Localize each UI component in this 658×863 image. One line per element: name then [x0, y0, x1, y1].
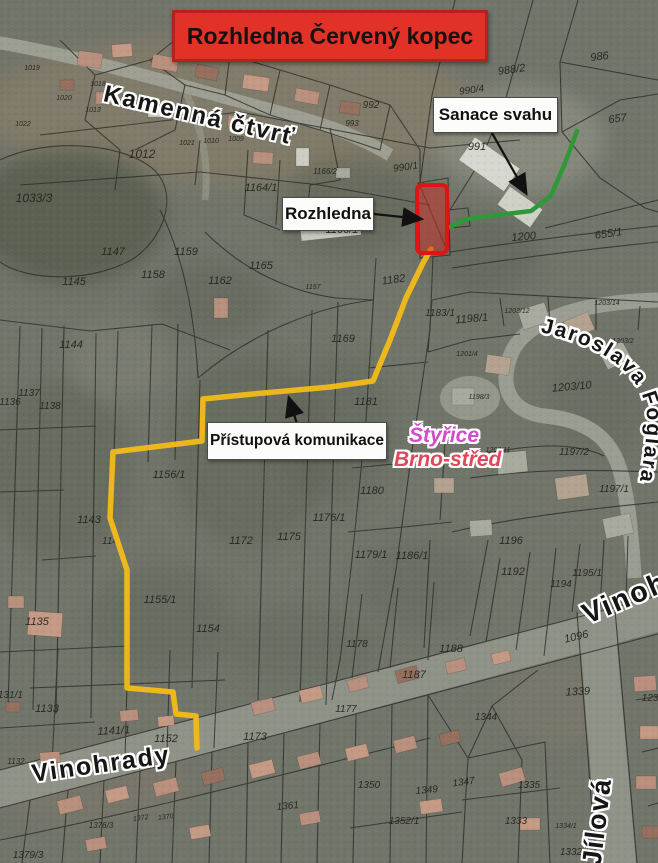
- parcel-number: 1179/1: [355, 549, 388, 561]
- parcel-number: 1333: [505, 816, 528, 827]
- parcel-number: 1350: [358, 780, 381, 791]
- parcel-number: 1154: [196, 623, 220, 635]
- sanace-label-text: Sanace svahu: [439, 105, 552, 125]
- parcel-number: 1376/3: [89, 821, 114, 830]
- parcel-number: 1135: [25, 616, 50, 628]
- parcel-number: 1131/1: [0, 690, 23, 701]
- parcel-number: 1013: [85, 107, 101, 114]
- parcel-number: 1203/14: [594, 300, 619, 307]
- parcel-number: 1183/1: [425, 308, 455, 319]
- parcel-number: 1169: [331, 333, 355, 345]
- parcel-number: 123: [642, 693, 658, 704]
- parcel-number: 1181: [354, 396, 378, 408]
- parcel-number: 1020: [56, 95, 72, 102]
- parcel-number: 1021: [179, 140, 195, 147]
- parcel-number: 1349: [415, 784, 439, 797]
- parcel-number: 1022: [15, 121, 31, 128]
- parcel-number: 1143: [77, 514, 102, 526]
- parcel-number: 1188: [439, 643, 464, 655]
- parcel-number: 1192: [501, 566, 525, 578]
- parcel-number: 1010: [203, 138, 219, 145]
- area-label-brno-stred: Brno-střed: [394, 448, 501, 472]
- sanace-label-box: Sanace svahu: [433, 97, 558, 133]
- parcel-number: 1186/1: [396, 550, 429, 562]
- tower-marker: [417, 185, 447, 253]
- area-label-styrice: Štyřice: [409, 424, 479, 448]
- parcel-number: 1195/1: [572, 568, 602, 579]
- parcel-number: 1133: [35, 703, 60, 715]
- parcel-number: 1352/1: [389, 816, 420, 827]
- parcel-number: 1138: [39, 401, 61, 412]
- pristupova-label-box: Přístupová komunikace: [207, 422, 387, 460]
- parcel-number: 1164/1: [245, 182, 278, 194]
- title-banner: Rozhledna Červený kopec: [172, 10, 488, 62]
- parcel-number: 1339: [565, 685, 590, 698]
- parcel-number: 1176/1: [313, 512, 346, 524]
- parcel-number: 1194: [550, 579, 572, 590]
- parcel-number: 1162: [208, 275, 232, 287]
- parcel-number: 1137: [18, 388, 40, 399]
- parcel-number: 993: [345, 119, 359, 128]
- parcel-number: 1201/4: [456, 351, 478, 358]
- parcel-number: 1196: [499, 535, 524, 547]
- parcel-number: 1361: [276, 800, 299, 813]
- parcel-number: 1144: [59, 339, 83, 351]
- parcel-number: 1187: [402, 669, 427, 681]
- parcel-number: 1203/12: [504, 308, 529, 315]
- parcel-number: 1180: [360, 485, 385, 497]
- parcel-number: 1172: [229, 535, 253, 547]
- parcel-number: 1141/1: [97, 724, 130, 738]
- rozhledna-label-text: Rozhledna: [285, 204, 371, 224]
- parcel-number: 991: [468, 141, 486, 153]
- parcel-number: 1145: [62, 276, 87, 288]
- parcel-number: 1198/3: [469, 394, 490, 401]
- parcel-number: 1334/1: [555, 823, 577, 830]
- parcel-number: 1175: [277, 531, 302, 543]
- parcel-number: 1200: [511, 230, 537, 244]
- parcel-number: 1344: [475, 712, 498, 723]
- parcel-number: 1173: [243, 731, 268, 743]
- parcel-number: 1033/3: [16, 191, 53, 205]
- parcel-number: 1019: [24, 65, 40, 72]
- parcel-number: 1158: [141, 269, 166, 281]
- parcel-number: 1156/1: [153, 469, 186, 481]
- parcel-number: 1335: [518, 780, 541, 791]
- parcel-number: 1018: [90, 81, 106, 88]
- parcel-number: 1012: [129, 147, 156, 161]
- parcel-number: 1157: [305, 284, 321, 291]
- parcel-number: 1159: [174, 246, 198, 258]
- title-text: Rozhledna Červený kopec: [187, 23, 473, 50]
- parcel-number: 1379/3: [13, 850, 44, 861]
- parcel-number: 1178: [346, 639, 368, 650]
- parcel-number: 1147: [101, 246, 126, 258]
- parcel-number: 1132: [7, 757, 25, 766]
- rozhledna-label-box: Rozhledna: [282, 197, 374, 231]
- parcel-number: 1197/2: [559, 447, 589, 458]
- parcel-number: 1197/1: [599, 484, 629, 495]
- parcel-number: 1177: [335, 704, 357, 715]
- parcel-number: 1155/1: [144, 594, 177, 606]
- parcel-number: 1165: [249, 260, 274, 272]
- map-container: 1019101810201013102210211010100910121033…: [0, 0, 658, 863]
- parcel-number: 992: [363, 100, 380, 111]
- parcel-number: 1166/2: [313, 167, 337, 176]
- pristupova-label-text: Přístupová komunikace: [210, 432, 384, 450]
